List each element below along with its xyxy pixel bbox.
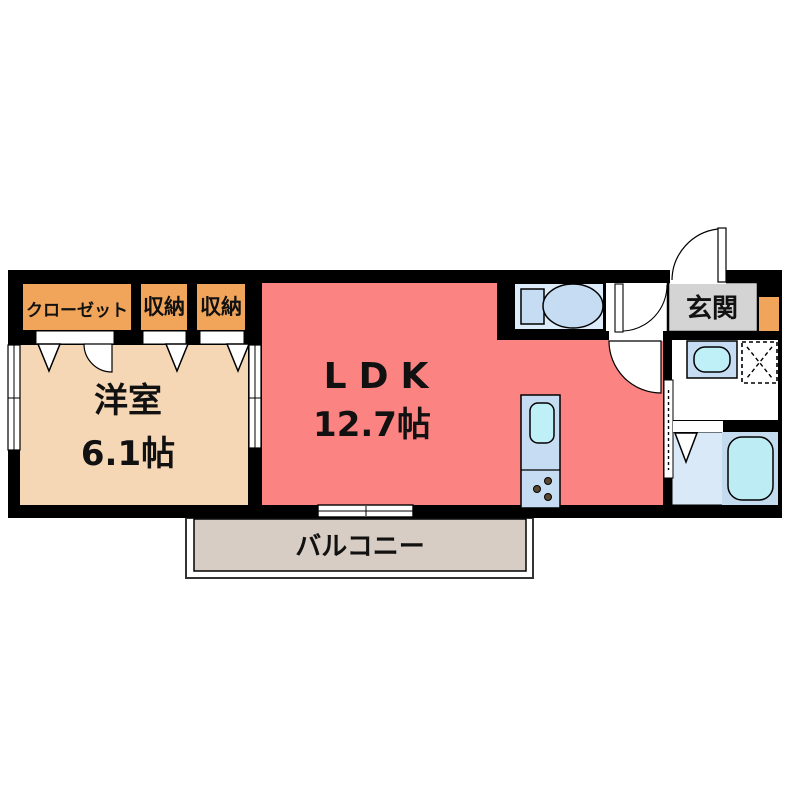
storage-2-label: 収納 (200, 295, 242, 319)
shoe-cabinet (758, 296, 780, 332)
ldk-name: LDK (324, 356, 441, 397)
western-room-size: 6.1帖 (81, 434, 175, 474)
window-western-left (8, 345, 20, 450)
window-balcony-sliding (318, 505, 413, 517)
entrance-label: 玄関 (686, 293, 738, 324)
balcony: バルコニー (186, 518, 533, 578)
washbasin-icon (687, 341, 737, 378)
western-room-name: 洋室 (94, 381, 162, 421)
kitchen-counter (521, 395, 560, 508)
kitchen-sink-icon (530, 403, 554, 443)
floorplan-page: バルコニー (0, 0, 800, 800)
closet-label: クローゼット (26, 300, 128, 321)
balcony-label: バルコニー (295, 532, 424, 562)
ldk-size: 12.7帖 (313, 405, 431, 445)
bathtub-icon (728, 437, 773, 500)
floor-plan: バルコニー (0, 0, 800, 800)
door-entrance (670, 228, 726, 284)
sliding-door-western-ldk (249, 345, 261, 448)
toilet-icon (521, 284, 603, 328)
storage-1-label: 収納 (143, 295, 185, 319)
washing-machine-pan-icon (742, 342, 777, 383)
room-western (20, 345, 248, 505)
sliding-door-washroom (664, 380, 673, 478)
